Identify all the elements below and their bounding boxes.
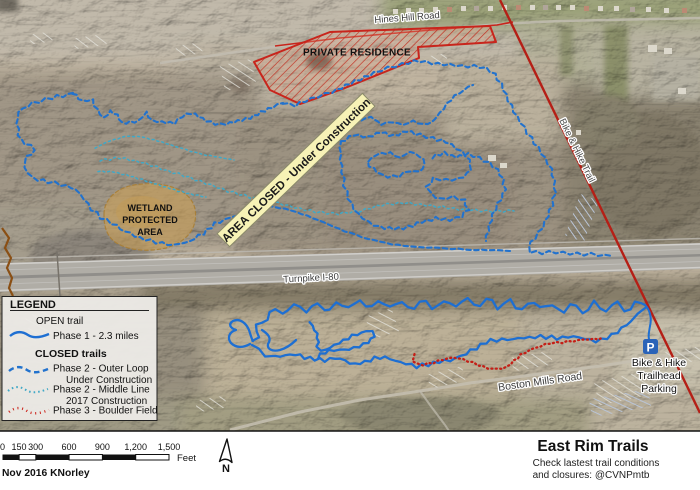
svg-text:900: 900 [95, 442, 110, 452]
svg-text:OPEN trail: OPEN trail [36, 316, 83, 327]
svg-text:Trailhead: Trailhead [637, 370, 681, 382]
svg-text:Parking: Parking [641, 383, 677, 395]
svg-text:Feet: Feet [177, 453, 196, 464]
svg-text:P: P [646, 341, 654, 355]
svg-text:LEGEND: LEGEND [10, 299, 56, 311]
svg-text:300: 300 [28, 442, 43, 452]
svg-text:150: 150 [11, 442, 26, 452]
svg-text:Phase 1 - 2.3 miles: Phase 1 - 2.3 miles [53, 331, 139, 342]
svg-text:Phase 3 - Boulder Field: Phase 3 - Boulder Field [53, 406, 158, 417]
svg-text:PROTECTED: PROTECTED [122, 215, 178, 225]
svg-text:PRIVATE RESIDENCE: PRIVATE RESIDENCE [303, 48, 411, 59]
svg-text:1,500: 1,500 [158, 442, 181, 452]
svg-text:and closures: @CVNPmtb: and closures: @CVNPmtb [533, 470, 650, 481]
svg-text:AREA: AREA [137, 227, 163, 237]
svg-text:Phase 2 - Middle Line: Phase 2 - Middle Line [53, 385, 150, 396]
svg-text:1,200: 1,200 [124, 442, 147, 452]
svg-text:0: 0 [0, 442, 5, 452]
svg-text:600: 600 [61, 442, 76, 452]
svg-text:N: N [222, 463, 230, 475]
svg-text:Check lastest trail conditions: Check lastest trail conditions [533, 458, 660, 469]
svg-text:Nov 2016 KNorley: Nov 2016 KNorley [2, 468, 90, 479]
svg-text:CLOSED trails: CLOSED trails [35, 348, 107, 360]
svg-text:Phase 2 - Outer Loop: Phase 2 - Outer Loop [53, 364, 149, 375]
svg-text:East Rim Trails: East Rim Trails [537, 438, 648, 455]
svg-text:Bike & Hike: Bike & Hike [632, 357, 686, 369]
svg-text:WETLAND: WETLAND [128, 203, 173, 213]
